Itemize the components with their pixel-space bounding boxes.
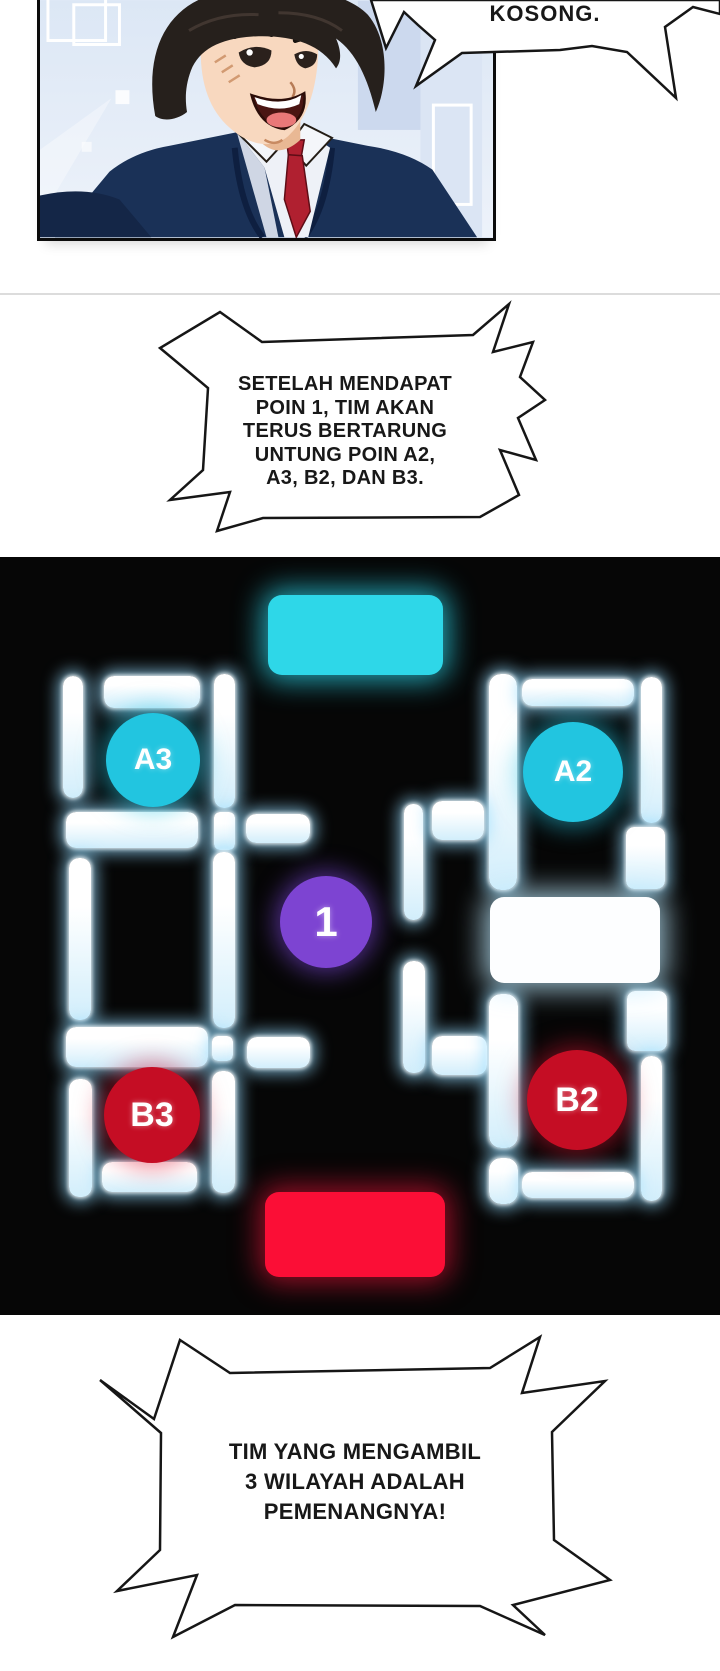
wall-bar	[489, 994, 518, 1148]
wall-bar	[214, 674, 235, 808]
wall-bar	[102, 1162, 197, 1192]
point-a2: A2	[523, 722, 623, 822]
wall-bar	[641, 677, 662, 823]
wall-bar	[69, 1079, 92, 1197]
speech-text-setelah: SETELAH MENDAPAT POIN 1, TIM AKAN TERUS …	[185, 373, 505, 491]
wall-bar	[63, 676, 83, 798]
wall-bar	[247, 1037, 310, 1068]
wall-bar	[213, 852, 235, 1028]
wall-bar	[626, 827, 665, 889]
wall-bar	[212, 1071, 235, 1193]
wall-bar	[432, 1036, 487, 1075]
wall-bar	[66, 812, 198, 848]
wall-bar	[246, 814, 310, 843]
comic-page: KOSONG. SETELAH MENDAPAT POIN 1, TIM AKA…	[0, 0, 720, 1671]
wall-bar	[214, 812, 235, 850]
point-a3: A3	[106, 713, 200, 807]
point-b3: B3	[104, 1067, 200, 1163]
team-a-base-zone	[268, 595, 443, 675]
wall-bar	[489, 674, 517, 890]
wall-bar	[432, 801, 484, 840]
wall-bar	[404, 804, 423, 920]
wall-bar	[403, 961, 425, 1073]
wall-bar	[641, 1056, 662, 1201]
wall-bar	[489, 1158, 518, 1204]
team-b-base-zone	[265, 1192, 445, 1277]
point-b2: B2	[527, 1050, 627, 1150]
center-white-zone	[490, 897, 660, 983]
speech-text-pemenang: TIM YANG MENGAMBIL 3 WILAYAH ADALAH PEME…	[180, 1437, 530, 1527]
wall-bar	[522, 679, 634, 706]
speech-bubble-kosong: KOSONG.	[350, 0, 720, 120]
point-1: 1	[280, 876, 372, 968]
speech-text-kosong: KOSONG.	[450, 1, 640, 27]
wall-bar	[104, 676, 200, 708]
wall-bar	[522, 1172, 634, 1198]
speech-bubble-setelah: SETELAH MENDAPAT POIN 1, TIM AKAN TERUS …	[130, 290, 560, 550]
wall-bar	[66, 1027, 208, 1067]
wall-bar	[627, 991, 667, 1051]
speech-bubble-pemenang: TIM YANG MENGAMBIL 3 WILAYAH ADALAH PEME…	[85, 1335, 630, 1640]
wall-bar	[212, 1036, 233, 1061]
wall-bar	[69, 858, 91, 1020]
game-map-panel: A3A21B3B2	[0, 557, 720, 1315]
